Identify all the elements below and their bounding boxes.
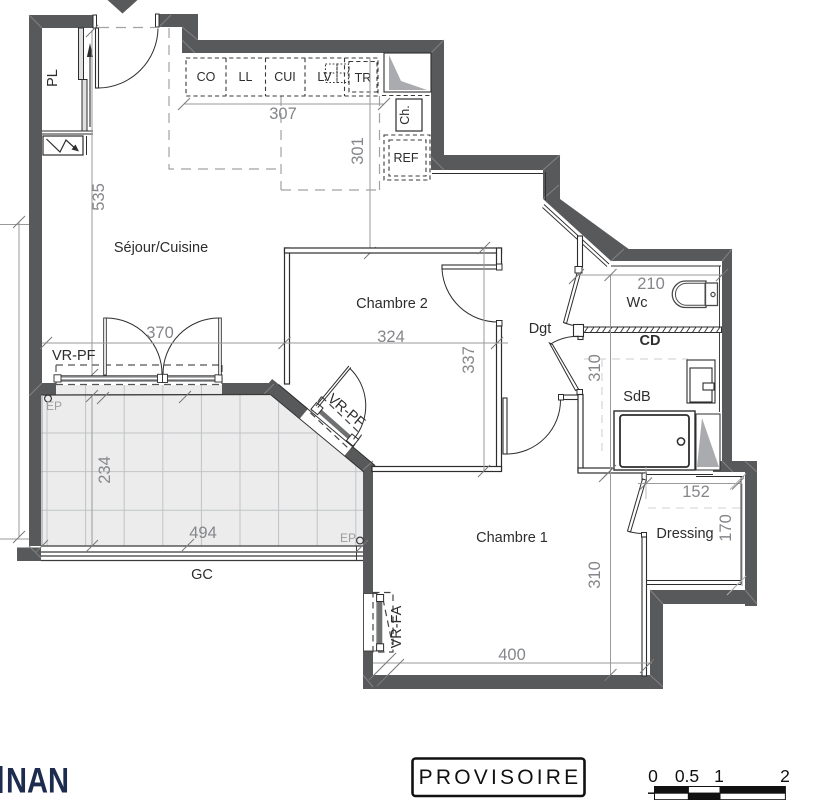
svg-text:400: 400 [498,646,526,664]
svg-text:VR-PF: VR-PF [324,391,368,431]
svg-text:VR-FA: VR-FA [389,605,405,648]
svg-text:1: 1 [714,766,724,786]
svg-text:REF: REF [394,151,419,165]
svg-text:310: 310 [586,354,604,382]
svg-text:PROVISOIRE: PROVISOIRE [419,766,582,789]
svg-text:337: 337 [460,346,478,374]
svg-text:210: 210 [637,275,665,293]
svg-text:324: 324 [377,328,405,346]
svg-text:LV: LV [317,70,332,84]
svg-text:301: 301 [349,137,367,165]
svg-text:307: 307 [269,105,297,123]
svg-text:EP: EP [340,531,356,545]
svg-text:NAN: NAN [6,762,69,800]
svg-text:Chambre 2: Chambre 2 [356,296,428,312]
svg-text:310: 310 [586,561,604,589]
svg-text:152: 152 [682,483,710,501]
svg-text:CUI: CUI [274,70,296,84]
svg-text:EP: EP [46,399,62,413]
svg-text:0.5: 0.5 [675,766,699,786]
svg-text:2: 2 [780,766,790,786]
svg-text:170: 170 [717,514,735,542]
svg-text:Dressing: Dressing [656,526,713,542]
svg-text:CD: CD [640,333,661,349]
svg-text:VR-PF: VR-PF [52,348,96,364]
svg-text:Chambre 1: Chambre 1 [476,530,548,546]
svg-text:Ch.: Ch. [398,105,412,124]
svg-text:234: 234 [96,456,114,484]
svg-text:TR: TR [355,71,372,85]
svg-text:370: 370 [146,324,174,342]
svg-text:LL: LL [239,70,253,84]
svg-text:PL: PL [45,69,61,87]
svg-text:SdB: SdB [623,389,650,405]
svg-text:Wc: Wc [627,295,648,311]
svg-text:0: 0 [648,766,658,786]
svg-text:CO: CO [197,70,216,84]
svg-text:535: 535 [90,183,108,211]
svg-text:Dgt: Dgt [529,321,552,337]
svg-text:GC: GC [191,567,213,583]
svg-text:Séjour/Cuisine: Séjour/Cuisine [114,240,208,256]
